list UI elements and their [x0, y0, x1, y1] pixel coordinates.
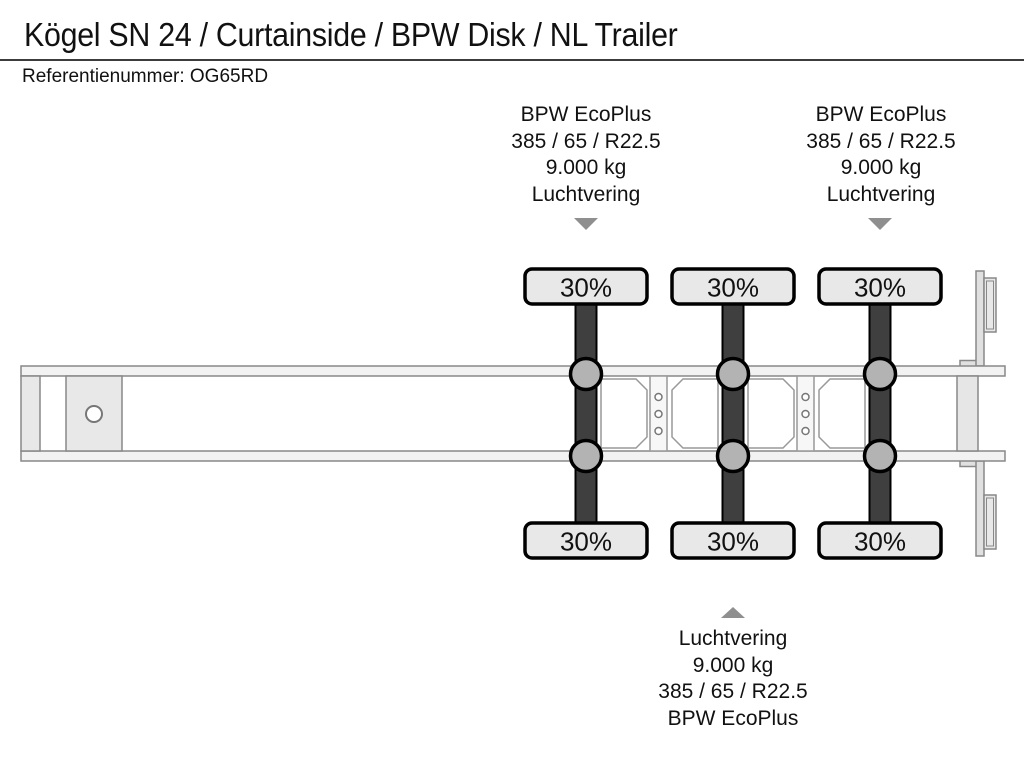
axle-2-bar [723, 290, 744, 537]
chassis-panel [819, 379, 865, 448]
axle-3-bar [870, 290, 891, 537]
bolt-hole [655, 411, 662, 418]
chassis-panel [672, 379, 718, 448]
tire-wear-label: 30% [560, 527, 612, 557]
tail-lamp [984, 495, 996, 549]
trailer-chassis [21, 366, 1005, 461]
tire-wear-label: 30% [854, 273, 906, 303]
rear-bumper-bar [976, 461, 984, 556]
axle-1-bar [576, 290, 597, 537]
suspension-circle [571, 359, 602, 390]
suspension-circle [718, 359, 749, 390]
bolt-hole [802, 411, 809, 418]
chassis-rail-bottom [21, 451, 1005, 461]
crossmember-bay1 [601, 376, 718, 451]
trailer-diagram: 30% 30% 30% 30% 30% 30% [0, 0, 1024, 768]
crossmember-bay2 [748, 376, 865, 451]
kingpin [86, 406, 102, 422]
arrow-down-icon [574, 218, 598, 230]
tire-wear-label: 30% [854, 527, 906, 557]
rear-crossmember [957, 376, 978, 451]
chassis-rail-top [21, 366, 1005, 376]
suspension-circle [865, 441, 896, 472]
front-end-cap [21, 376, 40, 451]
suspension-circle [865, 359, 896, 390]
arrow-up-icon [721, 607, 745, 618]
rear-bumper-bar [976, 271, 984, 366]
tire-wear-label: 30% [707, 527, 759, 557]
suspension-circle [718, 441, 749, 472]
tire-wear-label: 30% [707, 273, 759, 303]
bolt-hole [802, 394, 809, 401]
bolt-hole [655, 428, 662, 435]
bolt-hole [655, 394, 662, 401]
trailer-listing-image: Kögel SN 24 / Curtainside / BPW Disk / N… [0, 0, 1024, 768]
tail-lamp [984, 278, 996, 332]
tire-wear-label: 30% [560, 273, 612, 303]
suspension-circle [571, 441, 602, 472]
chassis-panel [748, 379, 794, 448]
chassis-panel [601, 379, 647, 448]
bolt-hole [802, 428, 809, 435]
arrow-down-icon [868, 218, 892, 230]
